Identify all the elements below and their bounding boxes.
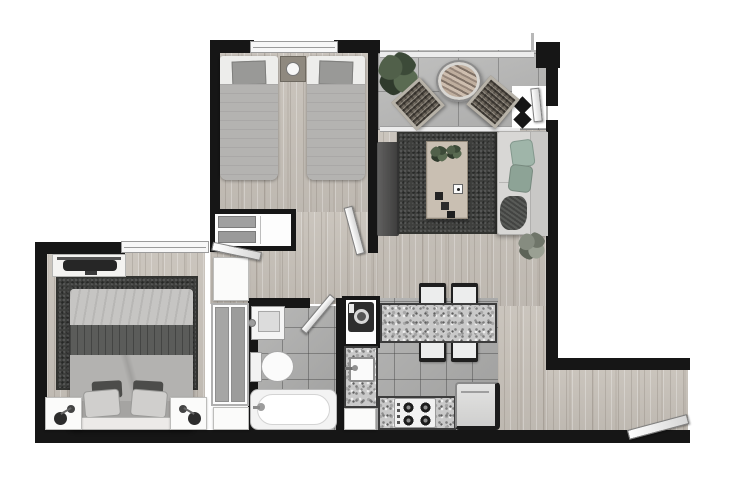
nightstand — [280, 56, 306, 82]
tv-console — [377, 142, 399, 236]
tv-stand — [85, 271, 97, 275]
washer-drum — [354, 309, 369, 324]
bed-throw — [70, 325, 193, 358]
decor-dot — [457, 188, 460, 191]
closet-divider — [260, 216, 261, 244]
table-plant — [446, 145, 462, 159]
sofa-throw — [500, 196, 527, 230]
closet-shelf — [218, 216, 256, 228]
burner-icon — [403, 415, 414, 426]
faucet-knob — [352, 365, 358, 371]
living-floor-plant — [518, 232, 546, 260]
floor-plan — [0, 0, 740, 493]
table-decor — [447, 211, 455, 218]
nightstand — [170, 397, 207, 430]
granite-bar — [378, 303, 497, 343]
sofa — [497, 131, 548, 235]
wall — [35, 242, 125, 254]
window-mullion — [124, 247, 206, 248]
fridge-handle — [461, 391, 489, 393]
kitchen-cabinet — [344, 408, 376, 430]
dresser — [52, 254, 126, 277]
master-wardrobe — [211, 303, 249, 406]
chair-back — [419, 283, 446, 287]
washing-machine — [348, 302, 374, 332]
vanity-sink — [258, 311, 280, 332]
duvet-fold — [70, 289, 193, 329]
bedroom2-window — [250, 41, 338, 53]
sage-cushion — [507, 164, 533, 194]
twin-bed — [220, 56, 278, 180]
faucet-spout — [253, 406, 260, 409]
cooktop — [394, 398, 436, 428]
washer-tray — [349, 304, 354, 313]
tv-icon — [63, 260, 117, 271]
closet-shelf — [218, 231, 256, 243]
stove-knobs — [397, 403, 400, 425]
master-cabinet — [213, 257, 249, 301]
lamp-icon — [286, 62, 300, 76]
pillow — [232, 60, 267, 85]
master-cabinet — [213, 407, 249, 430]
bed-blanket — [307, 84, 365, 180]
toilet-bowl — [261, 351, 294, 382]
vanity — [251, 306, 285, 340]
master-window — [121, 241, 209, 253]
pillow — [130, 388, 168, 418]
kitchen-sink — [349, 357, 375, 382]
burner-icon — [420, 402, 431, 413]
pillow — [83, 388, 121, 418]
hall-strip-floor — [497, 306, 548, 432]
table-decor — [441, 202, 449, 210]
laundry-closet — [342, 296, 380, 348]
railing-post — [531, 33, 534, 52]
pillow — [319, 60, 354, 85]
bathtub-basin — [257, 394, 330, 425]
nightstand — [45, 397, 82, 430]
chair-back — [451, 358, 478, 362]
table-decor — [435, 192, 443, 200]
coffee-table — [426, 141, 468, 219]
wall — [35, 430, 690, 443]
bathtub — [250, 389, 337, 430]
wardrobe-door — [231, 307, 245, 402]
wardrobe-door — [215, 307, 229, 402]
table-decor — [453, 184, 463, 194]
faucet-icon — [248, 319, 256, 327]
wall — [536, 42, 560, 68]
twin-bed — [307, 56, 365, 180]
lamp-icon — [188, 412, 201, 425]
bed-blanket — [220, 84, 278, 180]
chair-back — [451, 283, 478, 287]
wall — [210, 40, 254, 53]
table-plant — [430, 146, 448, 162]
wall — [546, 358, 690, 370]
window-mullion — [253, 47, 335, 48]
burner-icon — [420, 415, 431, 426]
chair-back — [419, 358, 446, 362]
refrigerator — [455, 382, 500, 430]
burner-icon — [403, 402, 414, 413]
